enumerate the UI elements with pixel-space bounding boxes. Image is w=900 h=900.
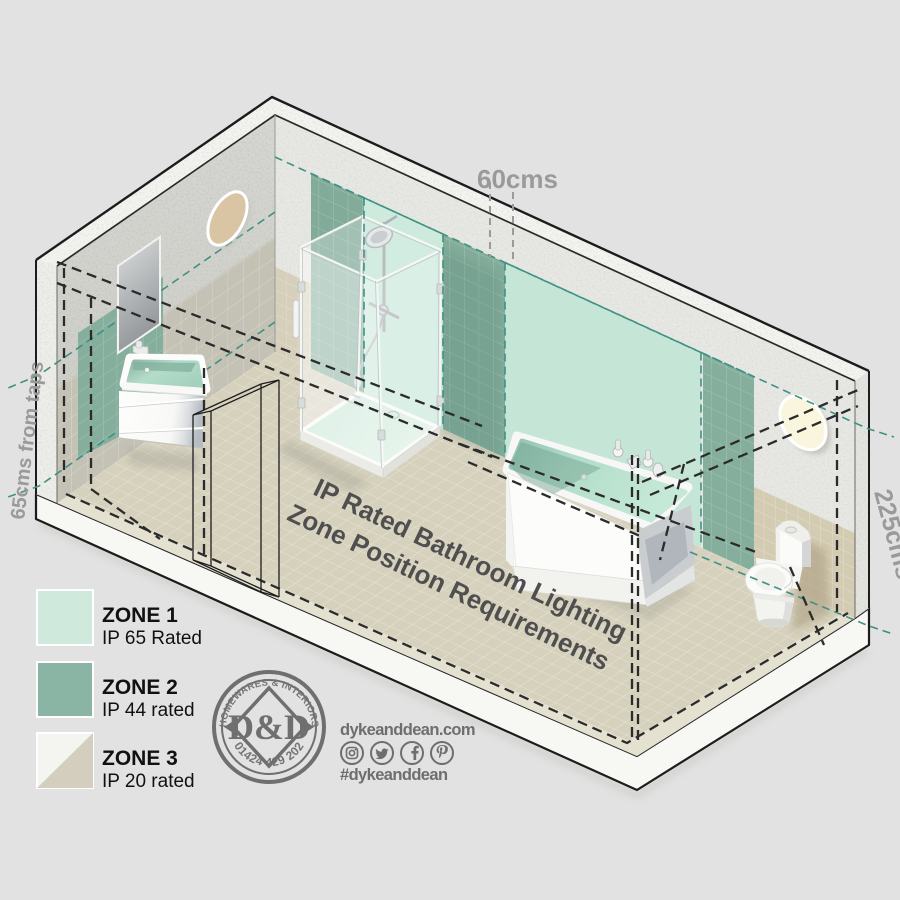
svg-text:60cms: 60cms: [477, 164, 558, 194]
svg-text:ZONE 1: ZONE 1: [102, 604, 178, 627]
svg-text:dykeanddean.com: dykeanddean.com: [340, 721, 475, 739]
svg-text:IP 44 rated: IP 44 rated: [102, 700, 195, 721]
svg-text:D&D: D&D: [228, 707, 310, 747]
svg-text:ZONE 3: ZONE 3: [102, 747, 178, 770]
svg-text:ZONE 2: ZONE 2: [102, 676, 178, 699]
svg-text:IP 65 Rated: IP 65 Rated: [102, 628, 202, 649]
svg-text:#dykeanddean: #dykeanddean: [340, 766, 448, 784]
svg-text:IP 20 rated: IP 20 rated: [102, 771, 195, 792]
